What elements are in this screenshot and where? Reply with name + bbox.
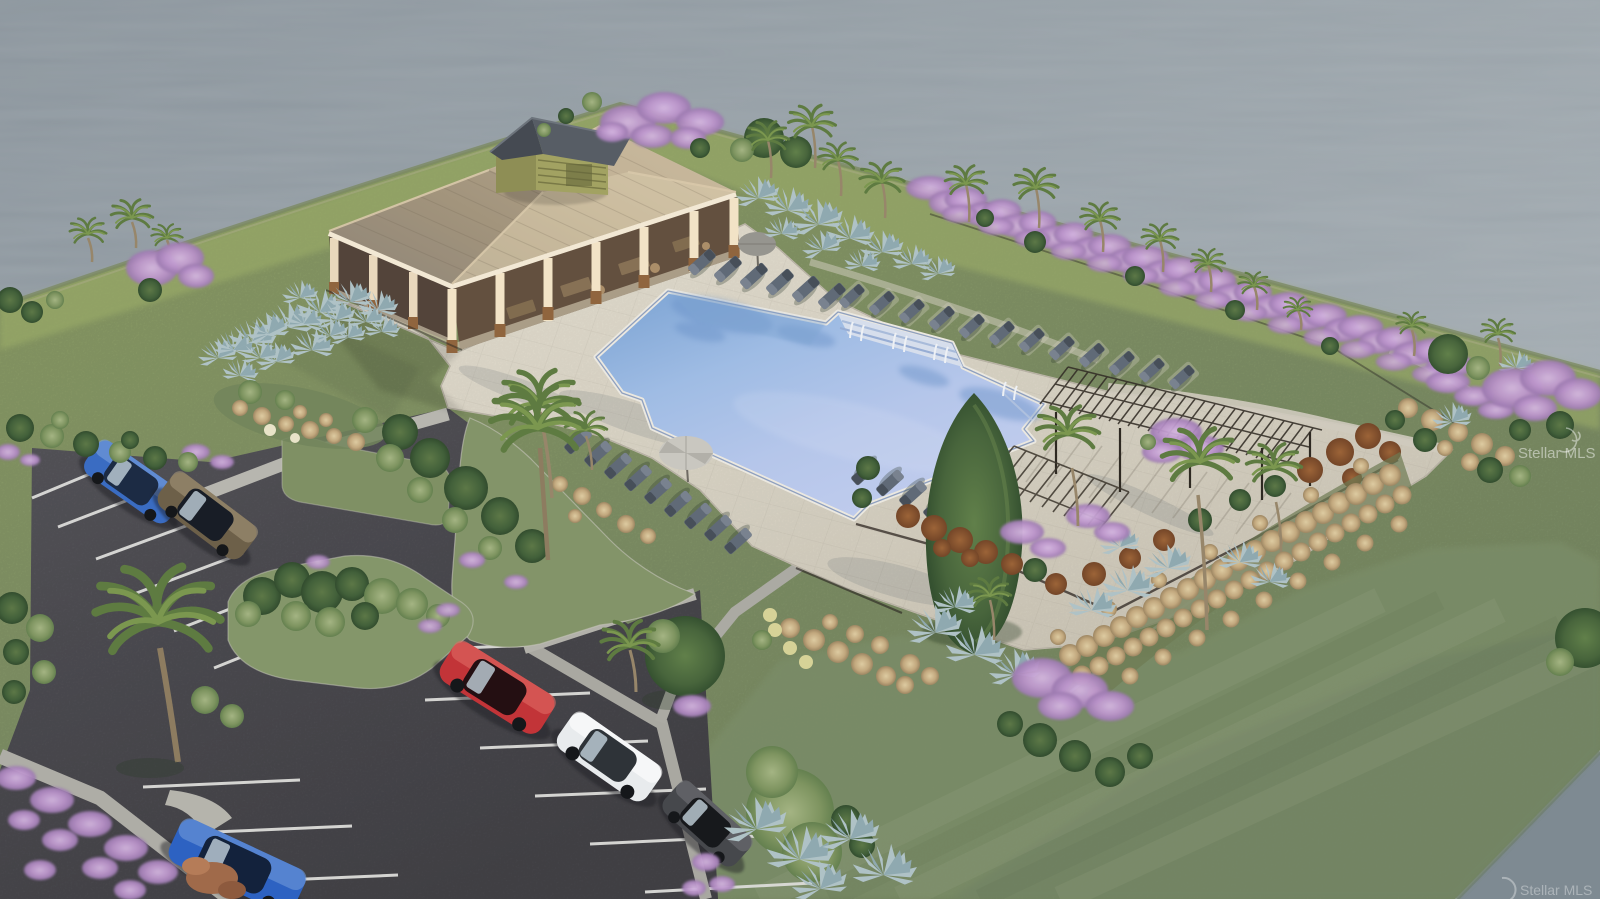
svg-text:Stellar MLS: Stellar MLS: [1520, 882, 1592, 898]
svg-text:Stellar MLS: Stellar MLS: [1518, 445, 1596, 462]
